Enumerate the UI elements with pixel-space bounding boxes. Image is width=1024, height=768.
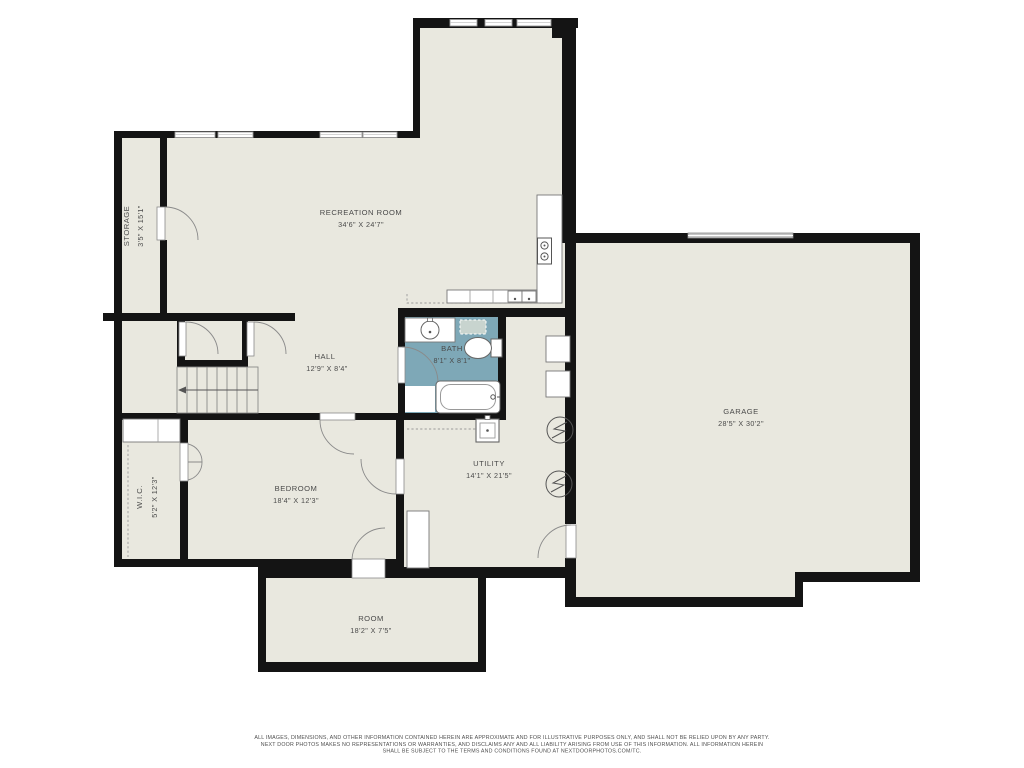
wall-bump-left [413, 18, 420, 138]
wall-garage-bottom-right [795, 572, 920, 582]
wall-left-exterior [114, 131, 122, 567]
label-storage-dims: 3'5" X 15'1" [136, 205, 145, 246]
wall-bump-notch [552, 28, 564, 38]
disclaimer-line-2: NEXT DOOR PHOTOS MAKES NO REPRESENTATION… [261, 742, 763, 748]
storage-name: STORAGE [122, 206, 131, 247]
disclaimer-line-3: SHALL BE SUBJECT TO THE TERMS AND CONDIT… [383, 749, 642, 755]
wall-bedroom-right-lower [396, 494, 404, 567]
garage-window [688, 233, 793, 238]
wic-shelf [123, 419, 180, 442]
counter-cabinet-2 [522, 291, 536, 302]
wall-bedroom-right-upper [396, 413, 404, 459]
wall-garage-right [910, 233, 920, 582]
wall-room-top-right [385, 567, 486, 578]
bath-name: BATH [441, 344, 463, 353]
bump-out-floor [417, 22, 562, 135]
wall-closet-bottom [177, 360, 248, 367]
floorplan-page: STORAGE 3'5" X 15'1" RECREATION ROOM 34'… [0, 0, 1024, 768]
label-storage: STORAGE [122, 206, 131, 247]
wall-bedroom-bottom-right [385, 559, 403, 567]
counter-cabinet-1 [508, 291, 522, 302]
garage-name: GARAGE [723, 407, 759, 416]
wall-bath-left-upper [398, 308, 405, 347]
disclaimer: ALL IMAGES, DIMENSIONS, AND OTHER INFORM… [254, 735, 769, 755]
bathtub-icon [436, 381, 500, 413]
wall-garage-left-lower [565, 558, 576, 607]
wall-storage-right-upper [160, 138, 167, 207]
wall-storage-right-lower [160, 240, 167, 315]
hall-name: HALL [315, 352, 336, 361]
wic-dims: 5'2" X 12'3" [150, 476, 159, 517]
stove-icon [538, 238, 552, 264]
wall-utility-top [398, 308, 568, 317]
wall-hall-top [103, 313, 295, 321]
bath-dims: 8'1" X 8'1" [433, 356, 470, 365]
bath-corner-pad [405, 386, 435, 412]
bath-vanity-sink-icon [405, 318, 455, 342]
bump-out-windows [450, 20, 551, 27]
wall-bedroom-bottom-left [114, 559, 352, 567]
utility-freezer [407, 511, 429, 568]
recreation-room-name: RECREATION ROOM [320, 208, 402, 217]
utility-sink-icon [476, 416, 499, 443]
bedroom-name: BEDROOM [275, 484, 318, 493]
laundry-appliance-1 [546, 336, 570, 362]
label-wic-dims: 5'2" X 12'3" [150, 476, 159, 517]
bedroom-dims: 18'4" X 12'3" [273, 496, 319, 505]
wall-recroom-right [562, 28, 576, 243]
wall-wic-right-upper [180, 420, 188, 443]
wall-garage-bottom-left [568, 597, 803, 607]
wic-name: W.I.C. [135, 485, 144, 509]
label-wic: W.I.C. [135, 485, 144, 509]
recreation-room-dims: 34'6" X 24'7" [338, 220, 384, 229]
room-dims: 18'2" X 7'5" [350, 626, 391, 635]
utility-dims: 14'1" X 21'5" [466, 471, 512, 480]
wall-room-bottom [258, 662, 486, 672]
garage-dims: 28'5" X 30'2" [718, 419, 764, 428]
wall-room-top-left [258, 567, 352, 578]
utility-name: UTILITY [473, 459, 505, 468]
wall-room-right [478, 567, 486, 672]
disclaimer-line-1: ALL IMAGES, DIMENSIONS, AND OTHER INFORM… [254, 735, 769, 741]
wall-room-left [258, 567, 266, 672]
laundry-appliance-2 [546, 371, 570, 397]
hall-dims: 12'9" X 8'4" [306, 364, 347, 373]
bath-mat [460, 320, 486, 334]
storage-dims: 3'5" X 15'1" [136, 205, 145, 246]
floorplan-drawing: STORAGE 3'5" X 15'1" RECREATION ROOM 34'… [0, 0, 1024, 768]
wall-wic-right-lower [180, 480, 188, 559]
room-name: ROOM [358, 614, 384, 623]
